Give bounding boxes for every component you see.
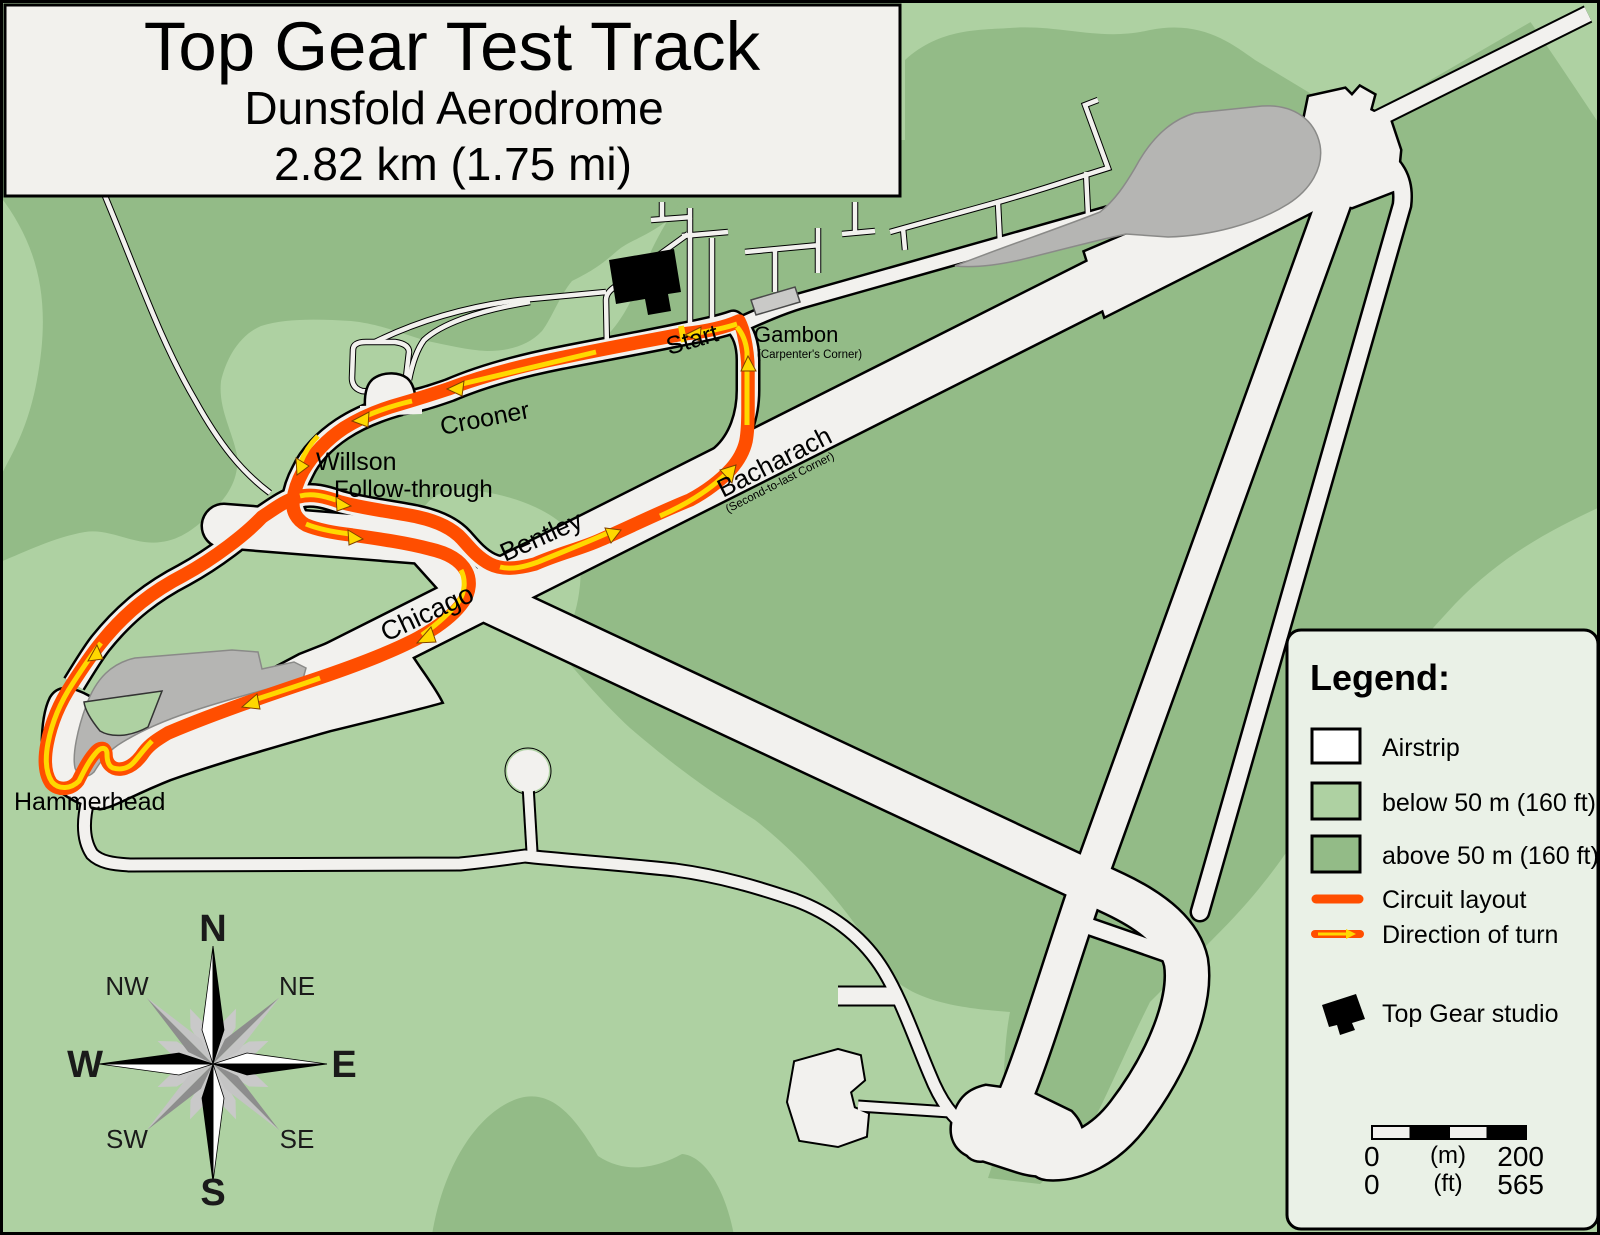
svg-text:(Carpenter's Corner): (Carpenter's Corner) bbox=[757, 349, 862, 361]
svg-text:200: 200 bbox=[1497, 1141, 1544, 1172]
svg-text:N: N bbox=[199, 908, 226, 950]
svg-text:SE: SE bbox=[280, 1124, 315, 1154]
svg-text:Gambon: Gambon bbox=[754, 322, 838, 347]
svg-text:SW: SW bbox=[106, 1124, 148, 1154]
svg-text:W: W bbox=[67, 1044, 103, 1086]
svg-text:Circuit layout: Circuit layout bbox=[1382, 886, 1527, 914]
svg-text:S: S bbox=[200, 1172, 225, 1214]
svg-text:(ft): (ft) bbox=[1433, 1170, 1462, 1197]
svg-text:Hammerhead: Hammerhead bbox=[14, 788, 165, 816]
svg-text:2.82 km (1.75 mi): 2.82 km (1.75 mi) bbox=[274, 138, 632, 190]
svg-text:Dunsfold Aerodrome: Dunsfold Aerodrome bbox=[244, 82, 663, 134]
svg-text:Legend:: Legend: bbox=[1310, 657, 1450, 698]
svg-text:NW: NW bbox=[105, 971, 149, 1001]
svg-text:NE: NE bbox=[279, 971, 315, 1001]
svg-text:Top Gear studio: Top Gear studio bbox=[1382, 1000, 1559, 1028]
svg-text:0: 0 bbox=[1364, 1169, 1380, 1200]
svg-text:E: E bbox=[331, 1044, 356, 1086]
svg-text:0: 0 bbox=[1364, 1141, 1380, 1172]
svg-text:Willson: Willson bbox=[316, 448, 397, 476]
svg-text:above 50 m (160 ft): above 50 m (160 ft) bbox=[1382, 842, 1599, 870]
svg-text:(m): (m) bbox=[1430, 1142, 1466, 1169]
svg-text:Follow-through: Follow-through bbox=[334, 476, 493, 503]
svg-text:below 50 m (160 ft): below 50 m (160 ft) bbox=[1382, 789, 1596, 817]
svg-text:Top Gear Test Track: Top Gear Test Track bbox=[144, 8, 761, 85]
svg-text:Direction of turn: Direction of turn bbox=[1382, 921, 1558, 949]
svg-text:Airstrip: Airstrip bbox=[1382, 734, 1460, 762]
svg-text:565: 565 bbox=[1497, 1169, 1544, 1200]
